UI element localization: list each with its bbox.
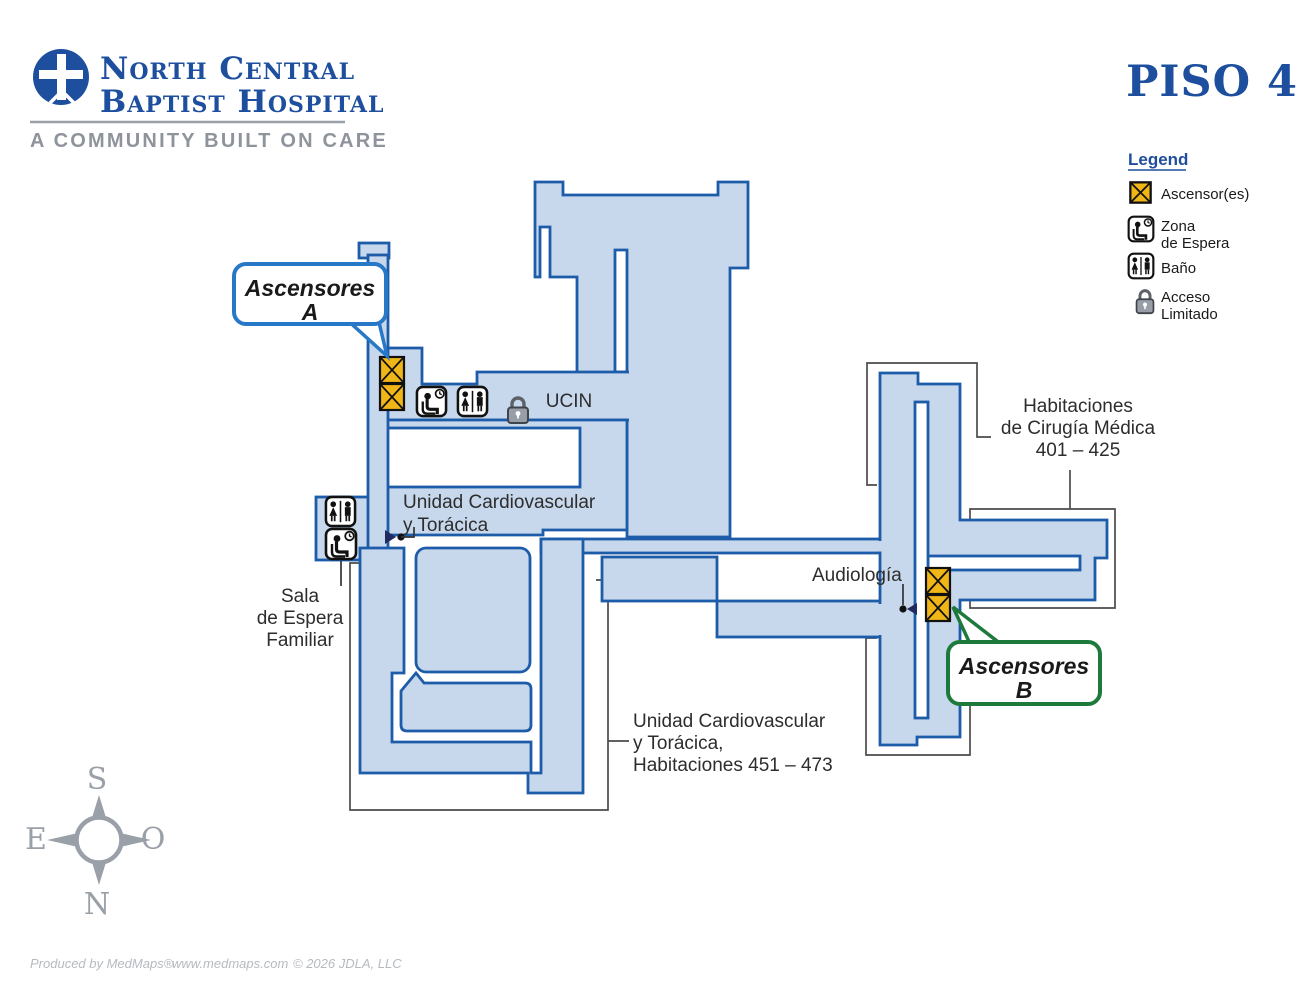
- elevator-icon: [1130, 182, 1150, 202]
- label-habitaciones-3: 401 – 425: [1036, 440, 1121, 461]
- legend-item-acceso-1: Acceso: [1161, 289, 1210, 306]
- legend-item-waiting-1: Zona: [1161, 218, 1196, 235]
- legend: Legend Ascensor(es) Zona de Espera Baño …: [1128, 150, 1249, 323]
- label-unidad-hab-1: Unidad Cardiovascular: [633, 711, 826, 732]
- callout-b-text-2: B: [1016, 677, 1033, 703]
- callout-b-text-1: Ascensores: [958, 653, 1089, 679]
- callout-a-text-1: Ascensores: [244, 275, 375, 301]
- restroom-icon-family: [326, 497, 355, 526]
- label-habitaciones-2: de Cirugía Médica: [1001, 418, 1156, 439]
- compass-east: E: [25, 822, 47, 857]
- label-habitaciones-1: Habitaciones: [1023, 396, 1133, 417]
- label-audiologia: Audiología: [812, 565, 902, 586]
- floor-map-page: North Central Baptist Hospital A COMMUNI…: [0, 0, 1299, 1004]
- southwest-room-block-1: [416, 548, 530, 672]
- restroom-icon: [1129, 254, 1154, 279]
- waiting-area-icon: [1129, 217, 1154, 242]
- elevators-a: [380, 357, 404, 410]
- legend-title: Legend: [1128, 150, 1188, 169]
- callout-ascensores-a: Ascensores A: [234, 264, 387, 356]
- label-unidad-hab-3: Habitaciones 451 – 473: [633, 755, 833, 776]
- legend-item-bano: Baño: [1161, 260, 1196, 277]
- label-sala-1: Sala: [281, 586, 319, 607]
- callout-ascensores-b: Ascensores B: [948, 607, 1100, 704]
- waiting-area-icon: [417, 387, 446, 416]
- audiologia-corridor-east-shape: [717, 601, 884, 637]
- southwest-room-block-2: [401, 673, 531, 731]
- hospital-tagline: A COMMUNITY BUILT ON CARE: [30, 130, 388, 152]
- hospital-logo: [33, 49, 89, 105]
- compass-south: S: [87, 762, 108, 797]
- label-ucin: UCIN: [546, 391, 592, 412]
- north-south-corridor-channel: [915, 402, 928, 718]
- label-unidad-hab-2: y Torácica,: [633, 733, 723, 754]
- hospital-name-line1: North Central: [100, 51, 355, 87]
- label-sala-2: de Espera: [257, 608, 344, 629]
- label-unidad-cardio-1: Unidad Cardiovascular: [403, 492, 596, 513]
- center-east-lane-shape: [541, 539, 884, 553]
- waiting-area-icon-family: [326, 529, 356, 559]
- legend-item-elevator: Ascensor(es): [1161, 186, 1249, 203]
- compass-rose: S E O N: [25, 762, 165, 922]
- legend-item-acceso-2: Limitado: [1161, 306, 1218, 323]
- callout-a-text-2: A: [301, 299, 319, 325]
- legend-item-waiting-2: de Espera: [1161, 235, 1230, 252]
- restroom-icon: [458, 387, 487, 416]
- elevators-b: [926, 568, 950, 621]
- lock-icon: [1137, 291, 1154, 314]
- label-sala-3: Familiar: [266, 630, 334, 651]
- audiologia-corridor-west-shape: [602, 557, 717, 601]
- footer-credit-producer: Produced by MedMaps®: [30, 956, 174, 971]
- compass-north: N: [84, 887, 110, 922]
- cardio-unit-courtyard: [385, 428, 580, 487]
- compass-west: O: [141, 822, 166, 857]
- page-title: PISO 4: [1126, 57, 1298, 107]
- hospital-name-line2: Baptist Hospital: [100, 84, 384, 120]
- footer-credit-website: www.medmaps.com: [172, 956, 288, 971]
- label-unidad-cardio-2: y Torácica: [403, 515, 489, 536]
- footer-credit-copyright: © 2026 JDLA, LLC: [293, 956, 402, 971]
